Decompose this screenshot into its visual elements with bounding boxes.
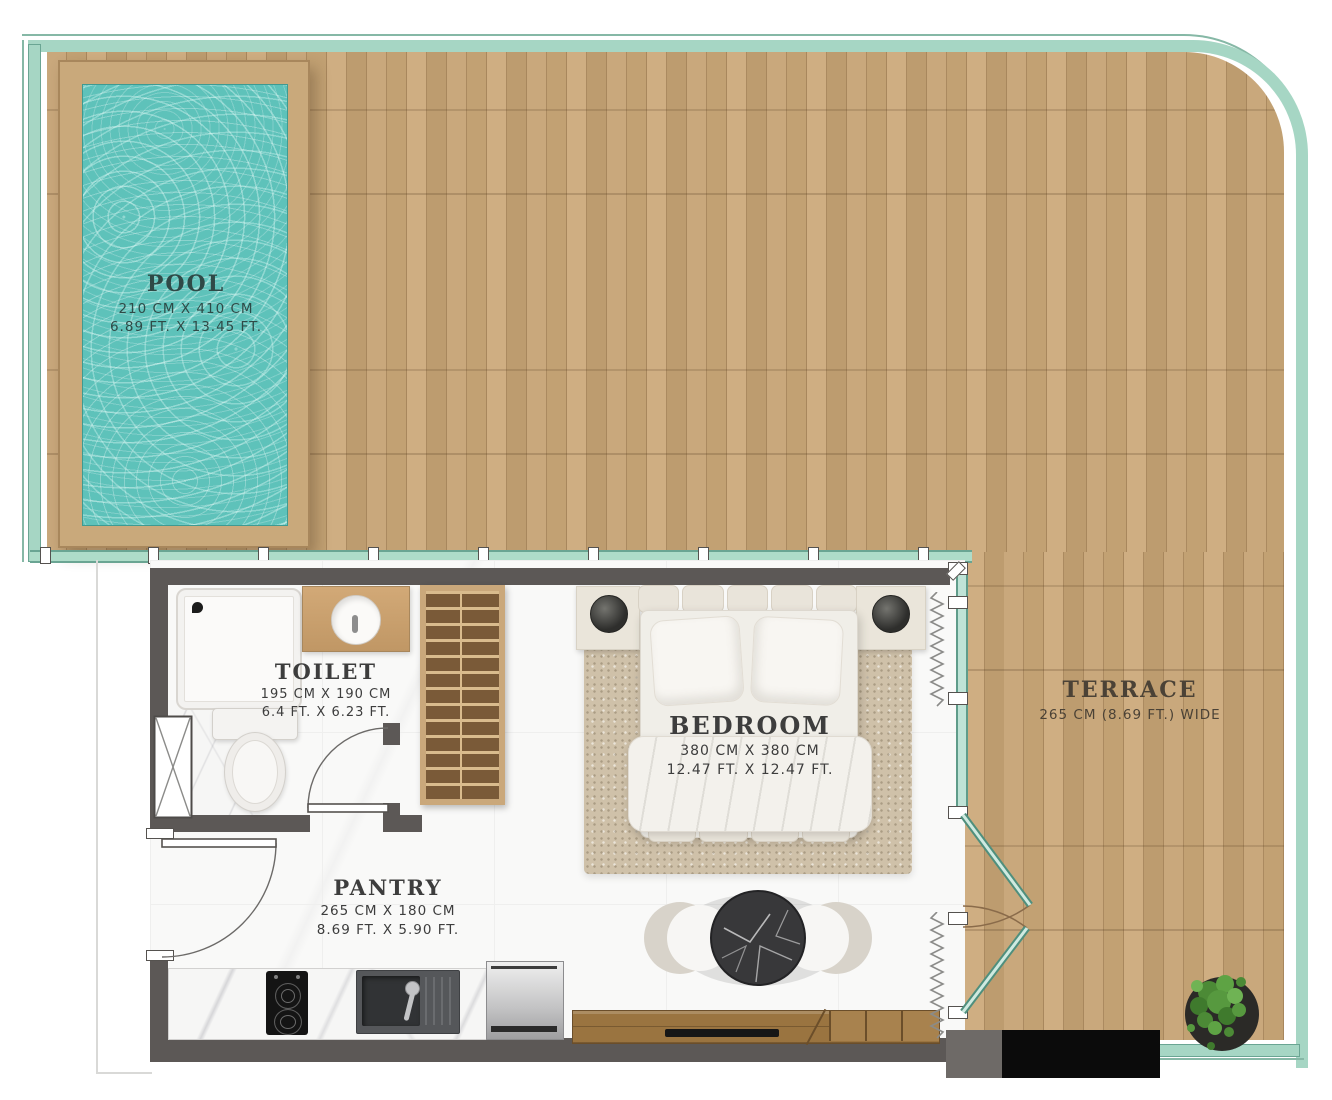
headboard-cushion	[727, 585, 768, 613]
pantry-title: PANTRY	[288, 874, 488, 902]
bedroom-title: BEDROOM	[640, 710, 860, 742]
wardrobe	[420, 585, 505, 805]
headboard-cushion	[816, 585, 857, 613]
vanity-counter	[302, 586, 410, 652]
toilet-label: TOILET 195 CM X 190 CM 6.4 FT. X 6.23 FT…	[226, 658, 426, 721]
entry-door	[150, 830, 300, 970]
headboard-cushion	[682, 585, 723, 613]
console-shelf-section	[829, 1011, 939, 1041]
knob-icon	[296, 975, 300, 979]
wall-toilet-stub-link	[398, 815, 422, 832]
headboard-cushion	[771, 585, 812, 613]
headboard-cushion	[638, 585, 679, 613]
toilet-dim-cm: 195 CM X 190 CM	[226, 686, 426, 704]
burner-icon	[275, 983, 301, 1009]
bedroom-dim-ft: 12.47 FT. X 12.47 FT.	[640, 761, 860, 780]
toilet-door	[300, 720, 400, 820]
console-divider	[901, 1011, 903, 1041]
tv-console	[572, 1010, 940, 1044]
console-angled-seam	[806, 1009, 827, 1045]
bedroom-label: BEDROOM 380 CM X 380 CM 12.47 FT. X 12.4…	[640, 710, 860, 780]
pillow-left	[649, 615, 745, 707]
bedroom-dim-cm: 380 CM X 380 CM	[640, 742, 860, 761]
terrace-label: TERRACE 265 CM (8.69 FT.) WIDE	[1028, 676, 1232, 724]
wall-top	[150, 568, 950, 585]
lamp-left-icon	[590, 595, 628, 633]
toilet-title: TOILET	[226, 658, 426, 686]
pool-dim-cm: 210 CM X 410 CM	[84, 300, 288, 318]
console-divider	[865, 1011, 867, 1041]
dark-planter-block	[1002, 1030, 1160, 1078]
wall-corner-block	[946, 1030, 1002, 1078]
pantry-dim-cm: 265 CM X 180 CM	[288, 902, 488, 920]
tv-icon	[665, 1029, 779, 1037]
railing-left-outline	[22, 40, 24, 562]
faucet-icon	[352, 615, 358, 633]
pool: POOL 210 CM X 410 CM 6.89 FT. X 13.45 FT…	[58, 60, 310, 548]
terrace-folding-doors	[950, 800, 1045, 1025]
dishwasher	[486, 961, 564, 1040]
toilet-dim-ft: 6.4 FT. X 6.23 FT.	[226, 704, 426, 722]
toilet-bowl	[224, 732, 286, 812]
shaft-duct	[153, 715, 193, 819]
knob-icon	[274, 975, 278, 979]
curtain-lower-icon	[928, 912, 946, 1040]
dining-table	[711, 891, 805, 985]
terrace-dim: 265 CM (8.69 FT.) WIDE	[1028, 706, 1232, 724]
glass-mullion-top-1	[40, 547, 51, 564]
plant	[1175, 962, 1270, 1062]
pool-title: POOL	[84, 270, 288, 300]
pool-label: POOL 210 CM X 410 CM 6.89 FT. X 13.45 FT…	[84, 270, 288, 336]
lamp-right-icon	[872, 595, 910, 633]
glass-mullion-right	[948, 692, 968, 705]
terrace-title: TERRACE	[1028, 676, 1232, 706]
appliance-kick-strip	[491, 1026, 557, 1032]
railing-left	[28, 44, 41, 562]
pillow-right	[750, 616, 844, 707]
burner-icon	[274, 1009, 302, 1035]
pantry-label: PANTRY 265 CM X 180 CM 8.69 FT. X 5.90 F…	[288, 874, 488, 939]
curtain-upper-icon	[928, 592, 946, 712]
sink-drainboard	[425, 977, 454, 1025]
headboard	[638, 585, 857, 613]
shower-drain-icon	[192, 602, 203, 613]
exterior-boundary-horizontal	[96, 1072, 152, 1074]
pool-dim-ft: 6.89 FT. X 13.45 FT.	[84, 318, 288, 336]
dining-set	[638, 884, 878, 996]
pantry-dim-ft: 8.69 FT. X 5.90 FT.	[288, 921, 488, 939]
exterior-boundary-vertical	[96, 560, 98, 1074]
glass-mullion-right	[948, 596, 968, 609]
appliance-handle-icon	[491, 966, 557, 969]
cooktop-hob	[266, 971, 308, 1035]
floor-plan: POOL 210 CM X 410 CM 6.89 FT. X 13.45 FT…	[0, 0, 1332, 1100]
kitchen-sink	[356, 970, 460, 1034]
